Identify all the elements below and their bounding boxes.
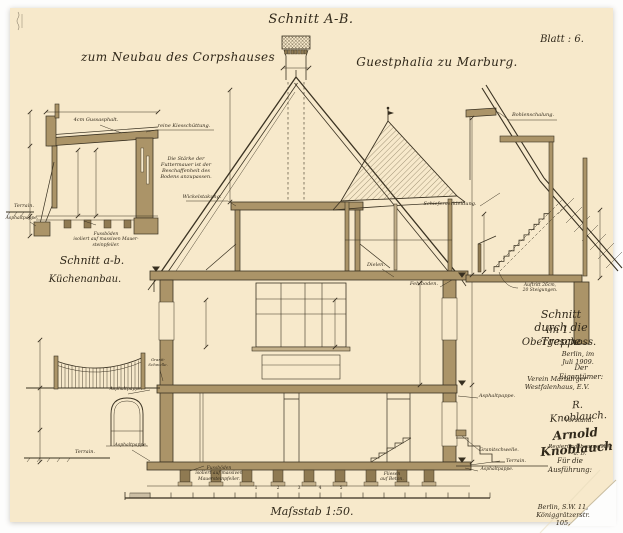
subtitle-right: Guestphalia zu Marburg. — [356, 55, 518, 70]
staircase-inset-drawing — [466, 85, 622, 344]
label-asphaltpappe-lower-left: Asphaltpappe. — [115, 443, 148, 448]
label-dielen: Dielen. — [367, 262, 385, 268]
scalebar-number-3: 3 — [298, 486, 301, 491]
note-futtermauer: Die Stärke der Futtermauer ist der Besch… — [160, 156, 211, 180]
label-bohlenschalung: Bohlenschalung. — [512, 112, 554, 118]
stair-caption-2: im 1. Obergeschoss. — [522, 325, 596, 349]
label-schieferverkleidung: Schieferverkleidung. — [424, 201, 477, 207]
kitchen-caption-2: Küchenanbau. — [49, 274, 121, 286]
label-asphaltpappe-right: Asphaltpappe. — [479, 393, 515, 399]
label-granitschwelle-left: Granit- Schwelle. — [148, 358, 168, 368]
label-terrain-left: Terrain. — [75, 449, 95, 455]
note-fussboeden-inset: Fussböden isoliert auf massiven Mauer- s… — [73, 232, 138, 248]
scalebar-number-4: 4 — [319, 486, 322, 491]
subtitle-left: zum Neubau des Corpshauses — [81, 50, 275, 65]
label-asphaltpappe-lower-right: Asphaltpappe. — [481, 467, 514, 472]
label-wickelstakung: Wickelstakung. — [183, 194, 222, 200]
label-kiesschuettung: reine Kiesschüttung. — [158, 123, 211, 129]
execution-line: Für die Ausführung: — [544, 457, 597, 474]
label-terrain-inset: Terrain. — [14, 203, 34, 209]
kitchen-caption-1: Schnitt a-b. — [60, 254, 125, 267]
owner-name: Verein Marburger Westfalenhaus, E.V. — [524, 376, 590, 392]
scalebar-number-1: 1 — [255, 486, 258, 491]
label-granitschwelle-right: Granitschwelle. — [479, 447, 519, 453]
label-gussasphalt: 4cm Gussasphalt. — [74, 117, 119, 123]
drawing-sheet: Schnitt A-B. zum Neubau des Corpshauses … — [0, 0, 623, 533]
label-fehlboden: Fehlboden. — [410, 281, 438, 287]
archive-mark — [17, 12, 22, 30]
note-fussboeden-main: Fussböden isoliert auf massiven Mauerste… — [195, 466, 242, 482]
label-asphaltpappe-upper-left: Asphaltpappe. — [110, 387, 143, 392]
label-asphaltpappe-inset: Asphaltpappe. — [6, 216, 39, 221]
scale-text: Maſsstab 1:50. — [271, 505, 354, 518]
label-terrain-right: Terrain. — [506, 458, 526, 464]
scalebar-number-5: 5 — [340, 486, 343, 491]
scale-bar — [125, 492, 490, 500]
sheet-title: Schnitt A-B. — [268, 12, 353, 28]
signature-2-role: Regierungsbaumeister a. D. — [548, 444, 611, 457]
sheet-number: Blatt : 6. — [540, 34, 584, 46]
note-auftritt: Auftritt 26cm, 20 Steigungen. — [523, 283, 558, 294]
scalebar-number-2: 2 — [277, 486, 280, 491]
address-line: Berlin, S.W. 11, Königgrätzerstr. 105. — [533, 504, 593, 528]
label-fliesen: Fliesen auf Beton. — [380, 472, 404, 483]
signature-1-role: Vorstand. — [565, 417, 594, 424]
